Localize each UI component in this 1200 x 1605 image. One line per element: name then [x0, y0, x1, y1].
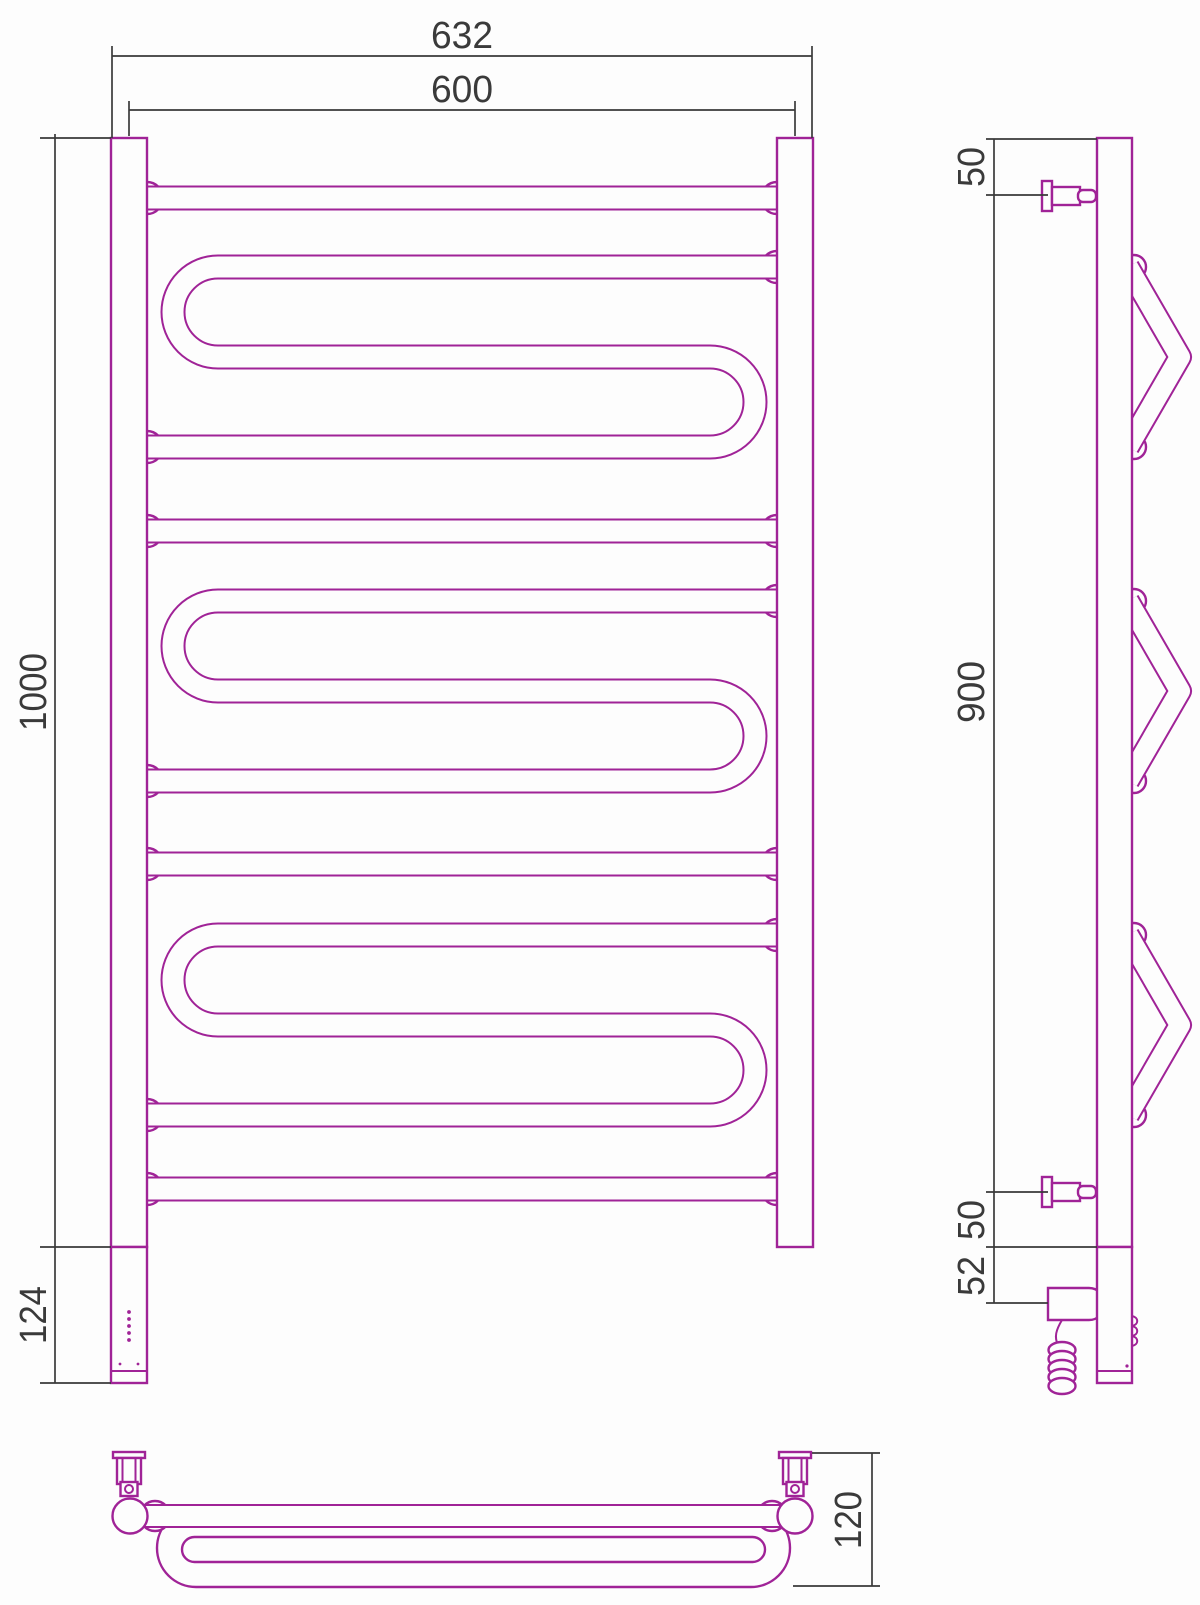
side-wall-bracket-bottom: [1042, 1177, 1096, 1207]
side-view: 50 900 50 52: [951, 138, 1180, 1394]
dim-body-height: 1000: [13, 653, 55, 731]
dim-depth: 120: [828, 1491, 870, 1549]
side-wall-bracket-top: [1042, 181, 1096, 211]
top-left-rail-section: [113, 1499, 148, 1534]
dim-width-overall: 632: [431, 15, 493, 57]
side-dimensions: 50 900 50 52: [951, 139, 1097, 1303]
dim-bracket-span: 900: [951, 661, 993, 723]
top-wall-bracket-left: [113, 1452, 145, 1496]
front-heater-housing: [111, 1247, 147, 1383]
drawing-sheet: 632 600 1000 124: [0, 0, 1200, 1605]
dim-bottom-offset: 50: [951, 1200, 993, 1240]
side-coiled-cable: [1049, 1320, 1076, 1394]
dim-top-offset: 50: [951, 147, 993, 187]
top-view: 120: [113, 1452, 881, 1587]
top-right-rail-section: [778, 1499, 813, 1534]
dim-heater-height: 124: [13, 1286, 55, 1344]
side-heater-housing: [1097, 1247, 1137, 1383]
towel-rail-drawing: 632 600 1000 124: [0, 0, 1200, 1605]
side-coil-loops: [1128, 267, 1180, 1115]
front-serpentine-coils: [138, 267, 790, 1115]
front-right-rail: [777, 138, 813, 1247]
top-wall-bracket-right: [779, 1452, 811, 1496]
front-view: 632 600 1000 124: [13, 15, 813, 1383]
dim-width-centers: 600: [431, 69, 493, 111]
dim-heater-offset: 52: [951, 1256, 993, 1296]
front-left-rail: [111, 138, 147, 1247]
side-rail: [1097, 138, 1132, 1247]
